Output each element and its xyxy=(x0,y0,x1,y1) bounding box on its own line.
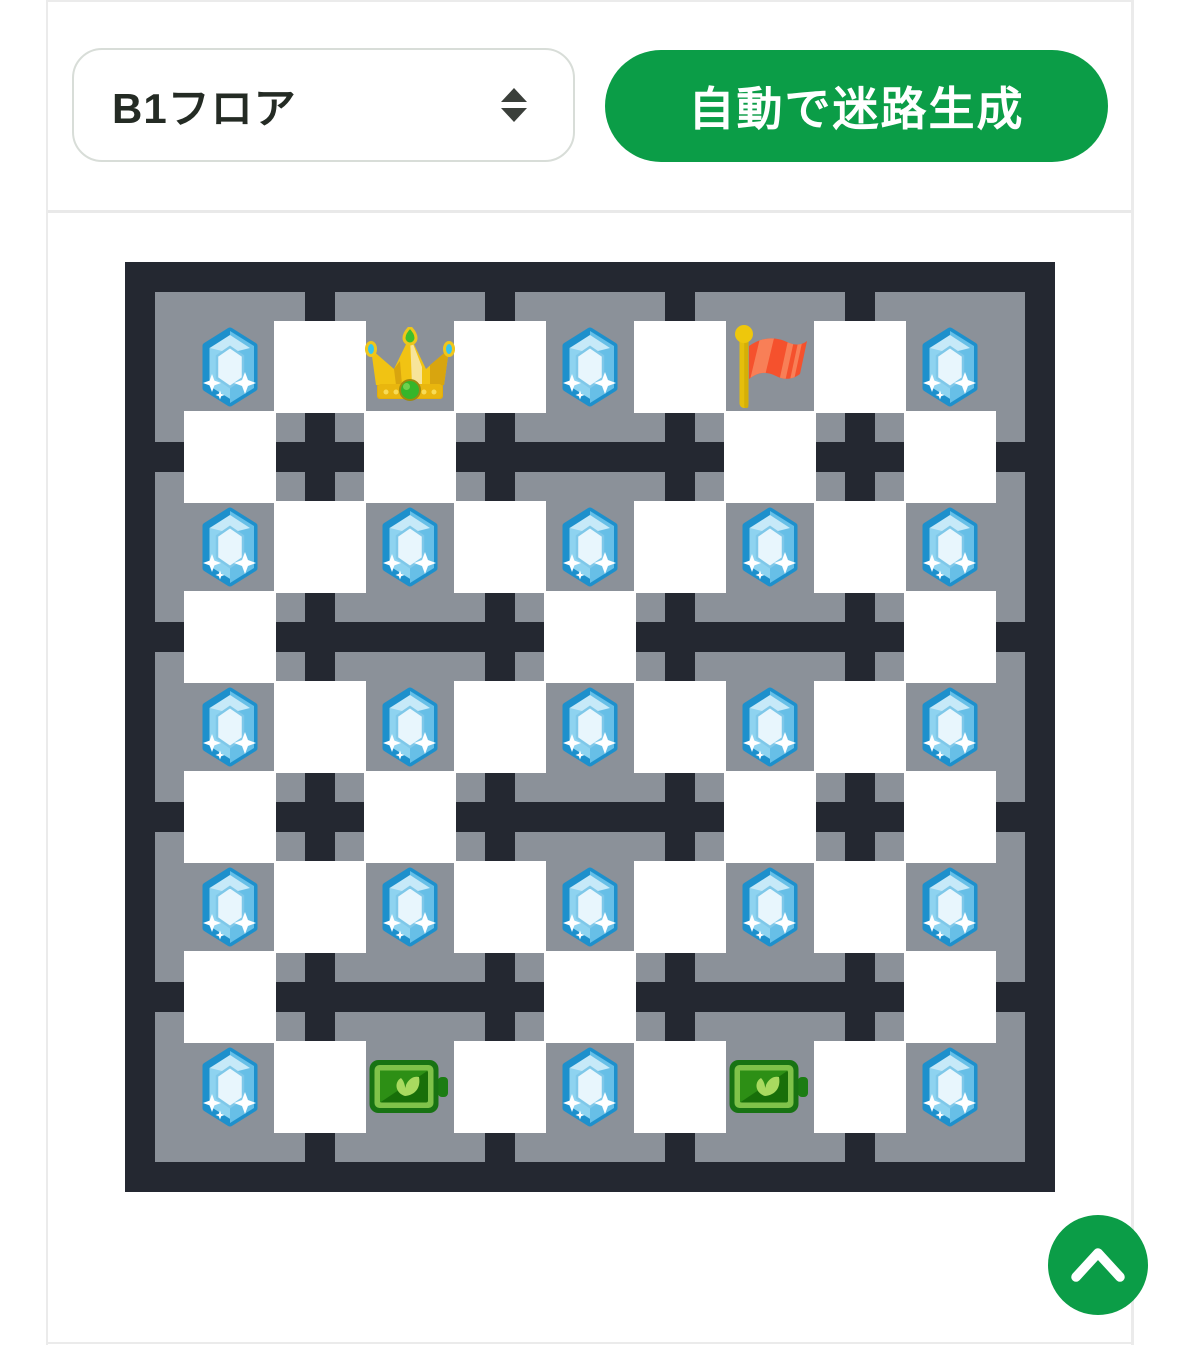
item-gem-icon xyxy=(739,867,801,947)
maze-item-gem xyxy=(919,507,981,587)
toolbar-divider xyxy=(48,210,1131,213)
maze-passage-open[interactable] xyxy=(454,861,546,953)
item-battery-icon xyxy=(729,1059,811,1115)
maze-passage-open[interactable] xyxy=(634,1041,726,1133)
maze-passage-open[interactable] xyxy=(904,771,996,863)
maze-item-battery xyxy=(369,1059,451,1115)
maze-item-crown xyxy=(364,327,456,407)
maze-passage-open[interactable] xyxy=(274,861,366,953)
item-gem-icon xyxy=(739,687,801,767)
left-frame-border xyxy=(46,0,48,1345)
maze-passage-open[interactable] xyxy=(724,411,816,503)
item-gem-icon xyxy=(919,1047,981,1127)
maze-passage-open[interactable] xyxy=(274,1041,366,1133)
maze-item-gem xyxy=(199,867,261,947)
maze-passage-open[interactable] xyxy=(814,1041,906,1133)
maze-item-gem xyxy=(379,507,441,587)
maze-item-gem xyxy=(919,867,981,947)
generate-maze-button[interactable]: 自動で迷路生成 xyxy=(605,50,1108,162)
maze-item-gem xyxy=(379,867,441,947)
item-gem-icon xyxy=(199,867,261,947)
maze-passage-open[interactable] xyxy=(184,951,276,1043)
maze-passage-open[interactable] xyxy=(904,951,996,1043)
maze-passage-open[interactable] xyxy=(634,861,726,953)
maze-passage-open[interactable] xyxy=(814,321,906,413)
item-gem-icon xyxy=(919,687,981,767)
maze-item-gem xyxy=(919,687,981,767)
item-gem-icon xyxy=(559,327,621,407)
floor-select-value: B1フロア xyxy=(112,75,501,136)
maze-board[interactable] xyxy=(125,262,1055,1192)
item-gem-icon xyxy=(199,327,261,407)
up-down-arrows-icon xyxy=(501,88,527,122)
maze-item-gem xyxy=(919,1047,981,1127)
maze-passage-open[interactable] xyxy=(274,321,366,413)
maze-passage-open[interactable] xyxy=(454,1041,546,1133)
item-gem-icon xyxy=(919,327,981,407)
maze-item-gem xyxy=(559,1047,621,1127)
maze-passage-open[interactable] xyxy=(724,771,816,863)
item-gem-icon xyxy=(379,867,441,947)
maze-item-gem xyxy=(199,687,261,767)
maze-passage-open[interactable] xyxy=(274,501,366,593)
item-gem-icon xyxy=(559,687,621,767)
maze-passage-open[interactable] xyxy=(364,771,456,863)
maze-item-gem xyxy=(379,687,441,767)
maze-item-gem xyxy=(739,507,801,587)
item-gem-icon xyxy=(379,687,441,767)
maze-passage-open[interactable] xyxy=(904,411,996,503)
maze-passage-open[interactable] xyxy=(454,321,546,413)
maze-item-gem xyxy=(199,1047,261,1127)
maze-passage-open[interactable] xyxy=(454,681,546,773)
maze-passage-open[interactable] xyxy=(184,591,276,683)
right-frame-border xyxy=(1131,0,1134,1345)
floor-select[interactable]: B1フロア xyxy=(72,48,575,162)
maze-passage-open[interactable] xyxy=(184,411,276,503)
bottom-frame-border xyxy=(46,1342,1134,1344)
maze-passage-open[interactable] xyxy=(904,591,996,683)
maze-passage-open[interactable] xyxy=(814,501,906,593)
maze-item-gem xyxy=(739,867,801,947)
chevron-up-icon xyxy=(1048,1215,1148,1315)
scroll-to-top-button[interactable] xyxy=(1048,1215,1148,1315)
item-gem-icon xyxy=(199,1047,261,1127)
item-gem-icon xyxy=(559,867,621,947)
maze-passage-open[interactable] xyxy=(544,591,636,683)
maze-item-gem xyxy=(199,327,261,407)
maze-item-flag xyxy=(731,324,809,410)
item-gem-icon xyxy=(919,507,981,587)
maze-passage-open[interactable] xyxy=(364,411,456,503)
maze-item-gem xyxy=(559,867,621,947)
item-gem-icon xyxy=(919,867,981,947)
maze-passage-open[interactable] xyxy=(454,501,546,593)
maze-item-battery xyxy=(729,1059,811,1115)
item-crown-icon xyxy=(364,327,456,407)
maze-passage-open[interactable] xyxy=(814,681,906,773)
maze-passage-open[interactable] xyxy=(274,681,366,773)
item-flag-icon xyxy=(731,324,809,410)
maze-item-gem xyxy=(199,507,261,587)
maze-item-gem xyxy=(559,507,621,587)
item-gem-icon xyxy=(559,1047,621,1127)
maze-item-gem xyxy=(919,327,981,407)
item-gem-icon xyxy=(739,507,801,587)
maze-passage-open[interactable] xyxy=(184,771,276,863)
item-gem-icon xyxy=(379,507,441,587)
maze-item-gem xyxy=(739,687,801,767)
maze-passage-open[interactable] xyxy=(544,951,636,1043)
maze-passage-open[interactable] xyxy=(634,501,726,593)
item-gem-icon xyxy=(559,507,621,587)
item-gem-icon xyxy=(199,507,261,587)
maze-item-gem xyxy=(559,687,621,767)
maze-item-gem xyxy=(559,327,621,407)
item-battery-icon xyxy=(369,1059,451,1115)
maze-passage-open[interactable] xyxy=(814,861,906,953)
generate-maze-button-label: 自動で迷路生成 xyxy=(689,73,1025,139)
top-frame-border xyxy=(46,0,1134,2)
maze-passage-open[interactable] xyxy=(634,321,726,413)
maze-passage-open[interactable] xyxy=(634,681,726,773)
item-gem-icon xyxy=(199,687,261,767)
